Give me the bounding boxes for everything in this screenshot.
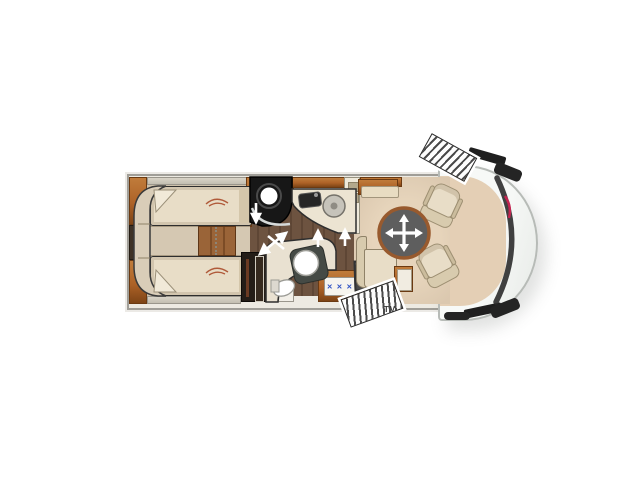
overhead-locker-top bbox=[147, 177, 247, 185]
rear-cabinet-top bbox=[129, 177, 147, 225]
twin-bed-top bbox=[150, 186, 252, 226]
hob-burners-icon: ✕ ✕ ✕ bbox=[324, 277, 356, 296]
overhead-locker-bottom bbox=[147, 296, 241, 304]
rear-shelf bbox=[129, 225, 147, 260]
twin-bed-bottom bbox=[150, 256, 252, 296]
top-sideboard bbox=[358, 179, 398, 195]
center-dotted-line bbox=[215, 227, 217, 255]
wardrobe bbox=[241, 252, 268, 302]
kitchen-overhead bbox=[292, 177, 346, 188]
motorhome-floorplan: ✕ ✕ ✕ bbox=[0, 0, 640, 480]
tv-label: TV bbox=[372, 305, 408, 314]
side-cabinet bbox=[394, 266, 413, 292]
rear-cabinet-bottom bbox=[129, 260, 147, 304]
side-cabinet-top bbox=[397, 269, 412, 291]
sideboard-top bbox=[361, 186, 399, 198]
bed-foot-bolster bbox=[239, 189, 249, 223]
cab-roof-trim-bottom bbox=[444, 312, 470, 320]
clothes-rail bbox=[246, 259, 249, 297]
wardrobe-door bbox=[255, 256, 264, 302]
bed-steps bbox=[198, 226, 236, 256]
washroom-cabinet bbox=[268, 287, 294, 302]
